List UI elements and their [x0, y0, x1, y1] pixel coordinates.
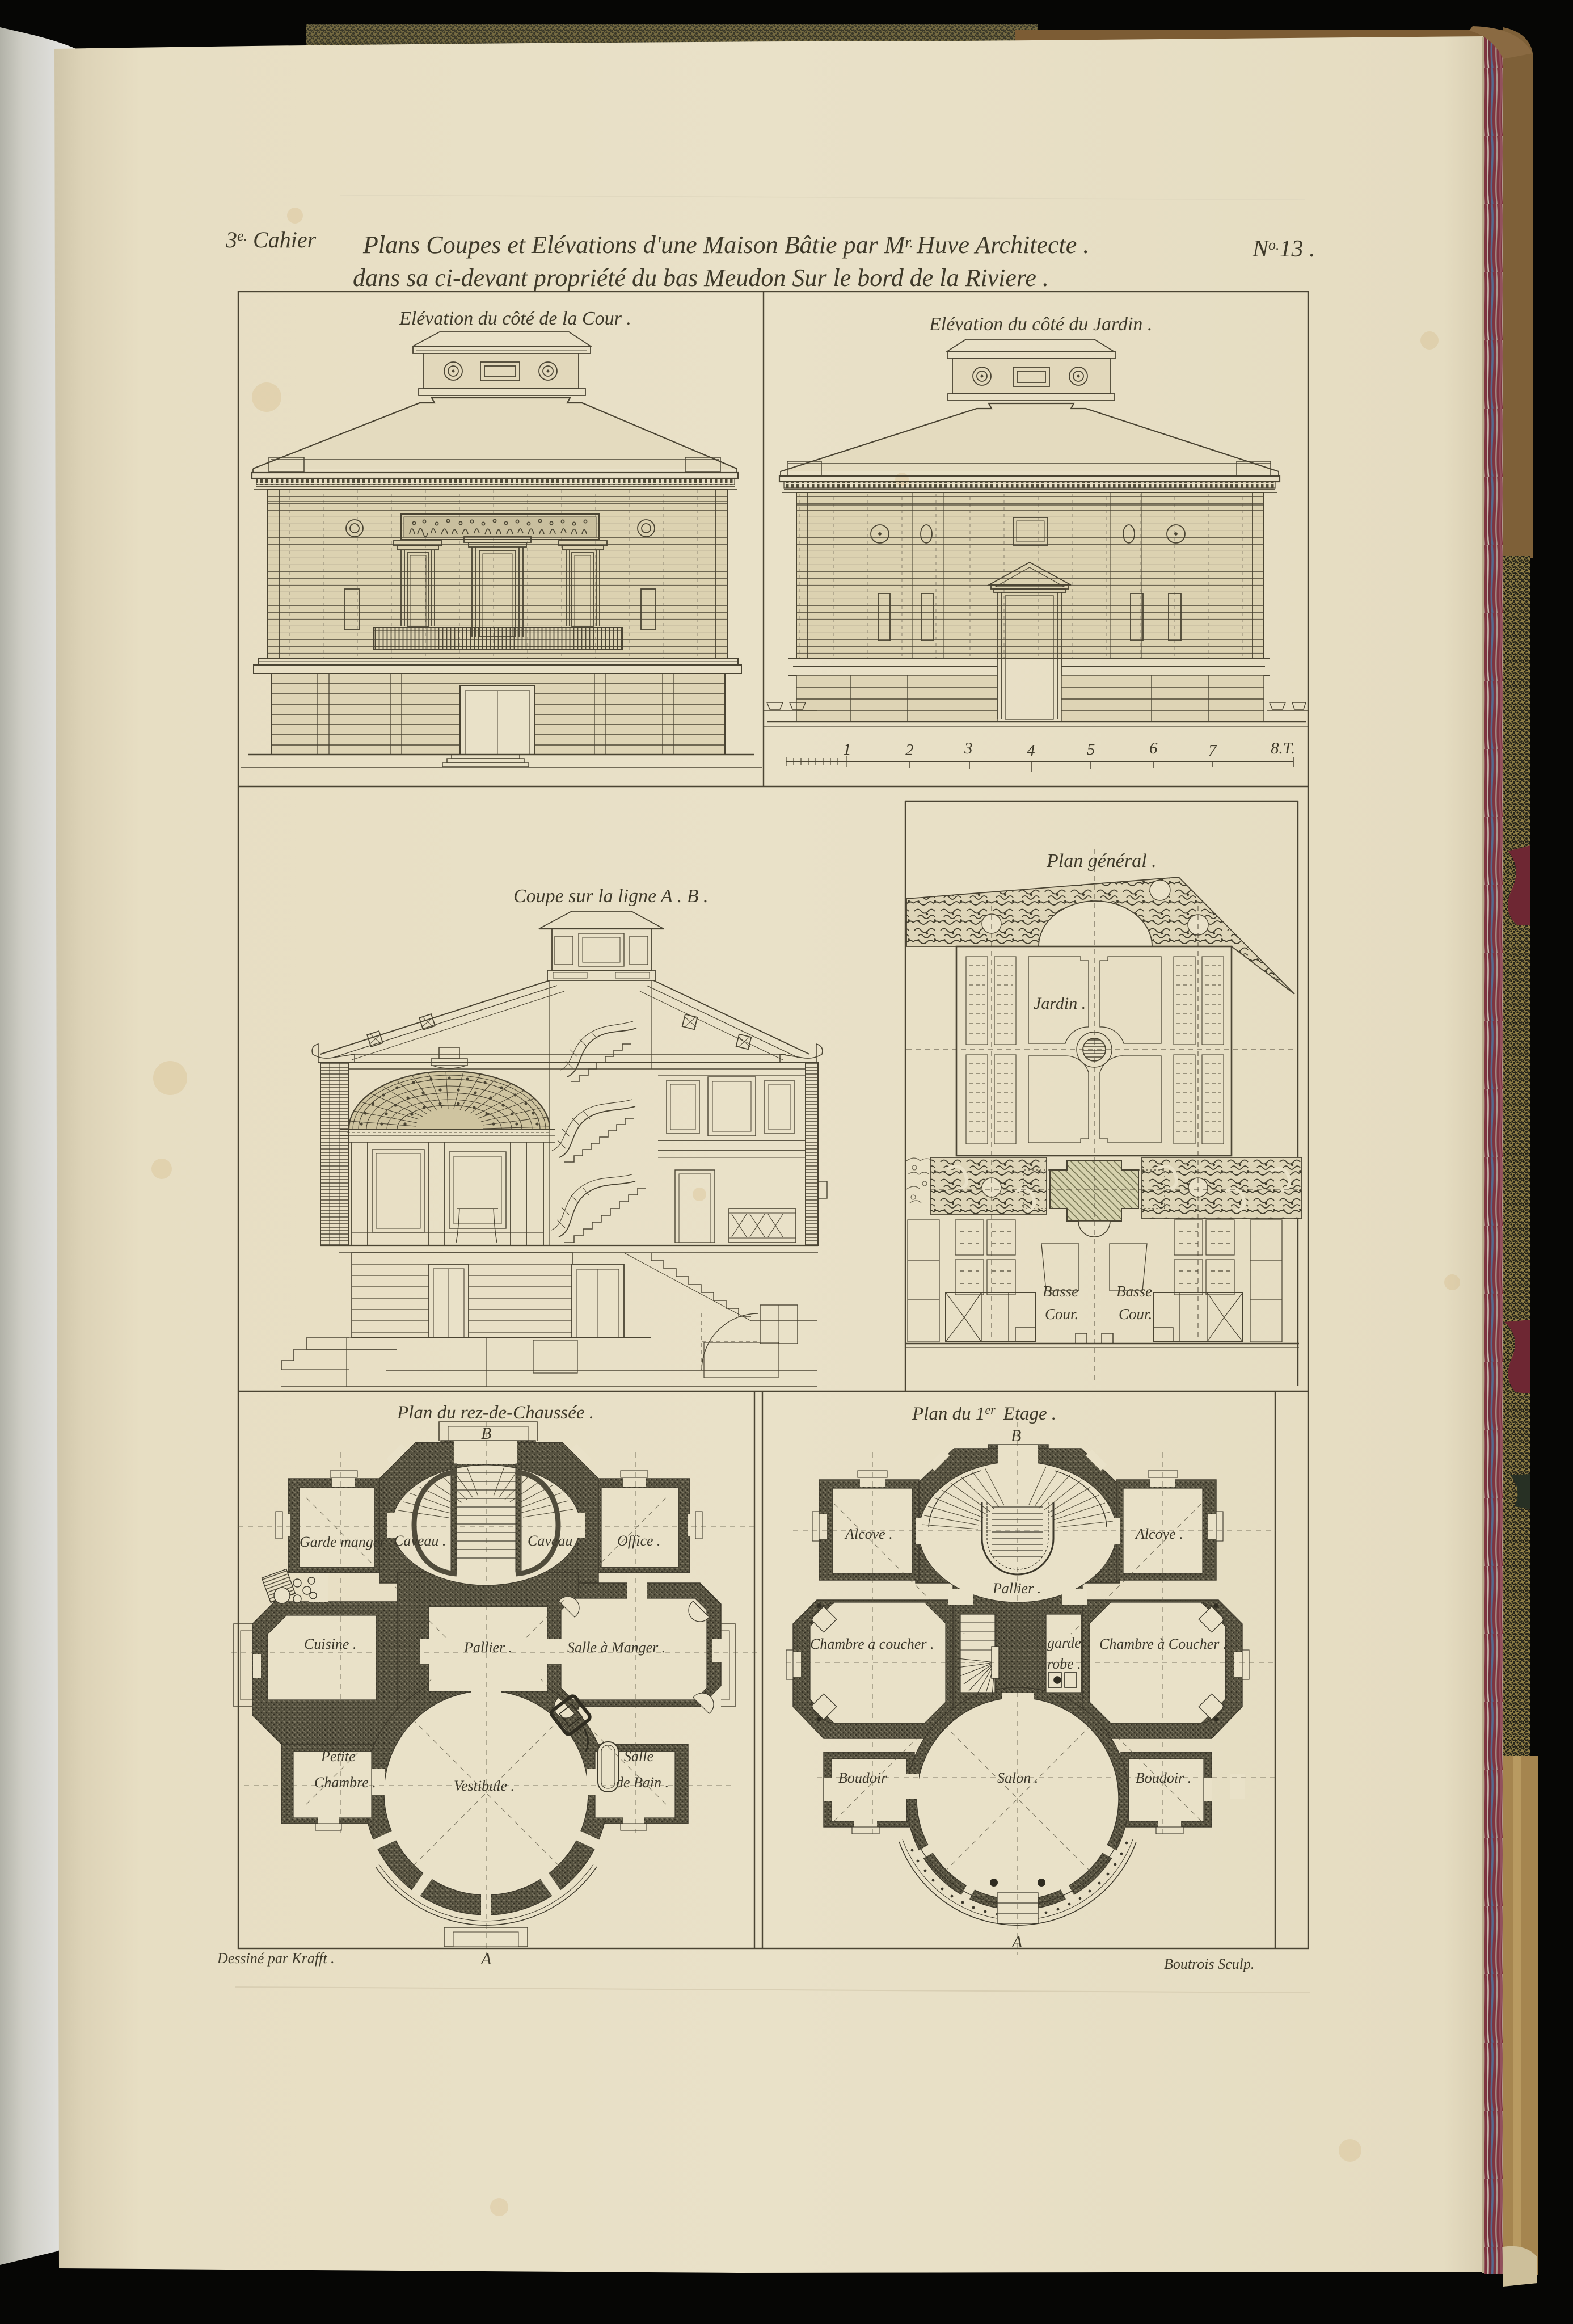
- svg-text:5: 5: [1087, 740, 1095, 759]
- svg-text:Plan général .: Plan général .: [1046, 851, 1157, 871]
- svg-text:Boutrois Sculp.: Boutrois Sculp.: [1164, 1956, 1254, 1972]
- svg-text:robe .: robe .: [1047, 1656, 1081, 1672]
- svg-text:3: 3: [964, 739, 973, 757]
- svg-text:Plans Coupes et Elévations d'u: Plans Coupes et Elévations d'une Maison …: [362, 231, 1089, 259]
- svg-text:Chambre .: Chambre .: [314, 1774, 376, 1791]
- svg-text:Chambre a coucher .: Chambre a coucher .: [810, 1636, 934, 1652]
- svg-text:Dessiné par Krafft .: Dessiné par Krafft .: [217, 1950, 335, 1967]
- svg-text:garde: garde: [1047, 1635, 1081, 1651]
- svg-text:Boudoir: Boudoir: [838, 1770, 887, 1786]
- svg-text:1: 1: [843, 740, 851, 759]
- svg-text:Salle: Salle: [624, 1748, 653, 1765]
- svg-text:Chambre à Coucher .: Chambre à Coucher .: [1099, 1636, 1226, 1652]
- svg-text:Alcove .: Alcove .: [1135, 1526, 1183, 1542]
- svg-text:Vestibule .: Vestibule .: [454, 1778, 515, 1794]
- svg-text:7: 7: [1208, 742, 1217, 760]
- svg-text:Alcove .: Alcove .: [844, 1526, 893, 1542]
- svg-text:de Bain .: de Bain .: [616, 1774, 669, 1791]
- svg-text:Elévation du côté du Jardin .: Elévation du côté du Jardin .: [929, 314, 1152, 335]
- svg-text:Basse: Basse: [1116, 1283, 1152, 1300]
- svg-text:A: A: [1011, 1933, 1023, 1951]
- svg-text:Cuisine .: Cuisine .: [304, 1636, 356, 1652]
- svg-text:Petite: Petite: [320, 1748, 356, 1765]
- svg-text:Salle à Manger .: Salle à Manger .: [567, 1639, 665, 1656]
- svg-text:Coupe sur la ligne A . B .: Coupe sur la ligne A . B .: [513, 886, 708, 907]
- svg-text:Office .: Office .: [617, 1533, 661, 1549]
- svg-text:Plan du rez-de-Chaussée .: Plan du rez-de-Chaussée .: [397, 1403, 594, 1423]
- svg-text:8.T.: 8.T.: [1271, 739, 1295, 757]
- svg-text:2: 2: [905, 741, 914, 759]
- svg-text:Jardin .: Jardin .: [1034, 994, 1086, 1013]
- svg-text:Cour.: Cour.: [1045, 1306, 1078, 1323]
- svg-text:Caveau .: Caveau .: [528, 1533, 580, 1549]
- svg-text:Plan du 1erEtage .: Plan du 1erEtage .: [912, 1403, 1056, 1424]
- svg-text:6: 6: [1149, 739, 1158, 757]
- svg-text:Pallier .: Pallier .: [463, 1639, 512, 1656]
- svg-text:B: B: [1011, 1426, 1021, 1445]
- svg-text:Basse: Basse: [1043, 1283, 1078, 1300]
- svg-text:4: 4: [1027, 742, 1035, 760]
- svg-text:Elévation du côté de la Cou: Elévation du côté de la Cour .: [399, 308, 631, 329]
- svg-text:dans sa ci-devant propriété du: dans sa ci-devant propriété du bas Meudo…: [353, 264, 1049, 292]
- svg-text:Salon .: Salon .: [997, 1770, 1038, 1786]
- svg-text:A: A: [480, 1950, 492, 1968]
- svg-text:Caveau .: Caveau .: [394, 1533, 446, 1549]
- svg-text:No.13 .: No.13 .: [1252, 236, 1315, 262]
- svg-text:Pallier .: Pallier .: [992, 1580, 1041, 1597]
- svg-text:Cour.: Cour.: [1119, 1306, 1152, 1323]
- svg-text:Boudoir .: Boudoir .: [1136, 1770, 1191, 1786]
- svg-text:Garde manger .: Garde manger .: [300, 1534, 393, 1550]
